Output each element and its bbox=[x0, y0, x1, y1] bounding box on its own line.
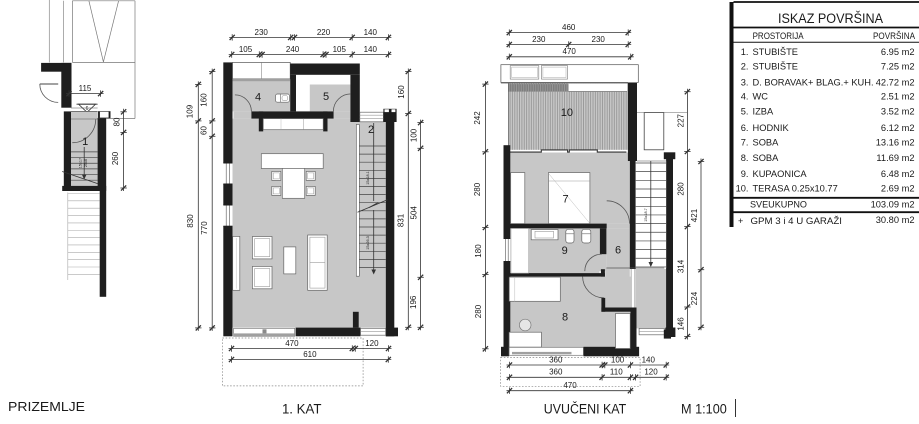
svg-text:SVEUKUPNO: SVEUKUPNO bbox=[750, 199, 807, 209]
svg-text:110: 110 bbox=[610, 368, 623, 377]
svg-text:7.25 m2: 7.25 m2 bbox=[881, 62, 915, 72]
svg-text:470: 470 bbox=[563, 381, 577, 390]
svg-text:7.: 7. bbox=[741, 138, 749, 148]
svg-text:100: 100 bbox=[409, 128, 418, 142]
svg-text:2.51 m2: 2.51 m2 bbox=[881, 92, 915, 102]
svg-text:230: 230 bbox=[532, 35, 546, 44]
svg-text:109: 109 bbox=[185, 104, 194, 118]
svg-text:224: 224 bbox=[690, 291, 699, 305]
svg-text:7: 7 bbox=[562, 194, 568, 206]
svg-text:STUBIŠTE: STUBIŠTE bbox=[753, 62, 798, 72]
svg-text:2.: 2. bbox=[741, 62, 749, 72]
svg-text:196: 196 bbox=[409, 295, 418, 309]
svg-text:830: 830 bbox=[186, 214, 195, 228]
svg-text:42.72 m2: 42.72 m2 bbox=[876, 78, 915, 88]
svg-text:105: 105 bbox=[239, 45, 253, 54]
svg-text:1: 1 bbox=[82, 136, 88, 148]
svg-text:PRIZEMLJE: PRIZEMLJE bbox=[8, 399, 85, 414]
svg-text:220: 220 bbox=[317, 28, 331, 37]
svg-text:15x17: 15x17 bbox=[79, 158, 83, 168]
svg-text:504: 504 bbox=[409, 206, 418, 220]
svg-text:280: 280 bbox=[474, 304, 483, 318]
svg-text:SOBA: SOBA bbox=[753, 153, 780, 163]
svg-text:ISKAZ POVRŠINA: ISKAZ POVRŠINA bbox=[778, 10, 883, 27]
svg-text:POVRŠINA: POVRŠINA bbox=[873, 31, 916, 41]
svg-text:2: 2 bbox=[368, 124, 374, 136]
svg-text:770: 770 bbox=[200, 221, 209, 235]
svg-text:140: 140 bbox=[642, 355, 656, 364]
svg-text:240: 240 bbox=[286, 45, 300, 54]
svg-text:8.: 8. bbox=[741, 153, 749, 163]
svg-text:30.80 m2: 30.80 m2 bbox=[876, 215, 915, 225]
svg-text:460: 460 bbox=[562, 23, 576, 32]
svg-text:SOBA: SOBA bbox=[753, 138, 780, 148]
svg-text:180: 180 bbox=[474, 244, 483, 258]
svg-text:M 1:100: M 1:100 bbox=[681, 402, 727, 417]
svg-text:227: 227 bbox=[676, 113, 685, 127]
svg-text:4.: 4. bbox=[741, 92, 749, 102]
svg-text:105: 105 bbox=[333, 45, 347, 54]
svg-text:160: 160 bbox=[199, 93, 208, 107]
svg-text:UVUČENI KAT: UVUČENI KAT bbox=[544, 402, 627, 417]
svg-text:831: 831 bbox=[397, 213, 406, 227]
svg-text:2.69 m2: 2.69 m2 bbox=[881, 184, 915, 194]
svg-text:260: 260 bbox=[111, 151, 120, 165]
svg-text:IZBA: IZBA bbox=[753, 107, 774, 117]
svg-text:280: 280 bbox=[473, 182, 482, 196]
svg-text:230: 230 bbox=[592, 35, 606, 44]
svg-text:10.: 10. bbox=[736, 184, 749, 194]
svg-text:115: 115 bbox=[79, 84, 92, 93]
svg-text:6: 6 bbox=[615, 245, 621, 257]
svg-text:80: 80 bbox=[113, 117, 122, 126]
svg-text:6.: 6. bbox=[741, 123, 749, 133]
svg-text:60: 60 bbox=[199, 126, 208, 135]
svg-text:5: 5 bbox=[323, 91, 329, 103]
svg-text:9.: 9. bbox=[741, 169, 749, 179]
svg-text:GPM 3 i 4 U GARAŽI: GPM 3 i 4 U GARAŽI bbox=[751, 216, 843, 226]
svg-text:8: 8 bbox=[562, 312, 568, 324]
svg-text:+: + bbox=[738, 216, 743, 226]
svg-text:1. KAT: 1. KAT bbox=[282, 402, 322, 417]
svg-text:120: 120 bbox=[644, 368, 658, 377]
svg-text:140: 140 bbox=[364, 45, 378, 54]
svg-text:15x18.1: 15x18.1 bbox=[366, 171, 370, 185]
svg-text:9: 9 bbox=[562, 245, 568, 257]
svg-text:1.: 1. bbox=[741, 47, 749, 57]
svg-text:140: 140 bbox=[364, 28, 378, 37]
svg-text:11.69 m2: 11.69 m2 bbox=[876, 153, 914, 163]
svg-text:4: 4 bbox=[255, 92, 261, 104]
svg-text:15x18.7: 15x18.7 bbox=[644, 208, 648, 222]
svg-text:10: 10 bbox=[561, 107, 573, 119]
svg-text:5.: 5. bbox=[741, 107, 749, 117]
svg-text:146: 146 bbox=[676, 317, 685, 331]
svg-text:KUPAONICA: KUPAONICA bbox=[753, 169, 808, 179]
svg-text:25x6: 25x6 bbox=[84, 159, 88, 167]
svg-text:280: 280 bbox=[676, 182, 685, 196]
svg-text:230: 230 bbox=[255, 28, 269, 37]
svg-text:421: 421 bbox=[690, 208, 699, 222]
svg-text:120: 120 bbox=[365, 339, 379, 348]
svg-text:WC: WC bbox=[753, 92, 769, 102]
svg-text:STUBIŠTE: STUBIŠTE bbox=[753, 47, 798, 57]
svg-text:470: 470 bbox=[563, 47, 577, 56]
svg-text:PROSTORIJA: PROSTORIJA bbox=[753, 31, 805, 41]
svg-text:610: 610 bbox=[303, 350, 317, 359]
svg-text:160: 160 bbox=[397, 85, 406, 99]
svg-text:D. BORAVAK+ BLAG.+ KUH.: D. BORAVAK+ BLAG.+ KUH. bbox=[753, 78, 874, 88]
svg-text:314: 314 bbox=[676, 259, 685, 273]
svg-text:100: 100 bbox=[611, 355, 625, 364]
svg-text:TERASA 0.25x10.77: TERASA 0.25x10.77 bbox=[753, 184, 838, 194]
svg-text:470: 470 bbox=[285, 339, 299, 348]
svg-text:13.16 m2: 13.16 m2 bbox=[876, 138, 915, 148]
svg-text:3.52 m2: 3.52 m2 bbox=[881, 107, 915, 117]
svg-text:15x26.3: 15x26.3 bbox=[366, 236, 370, 250]
svg-text:6.12 m2: 6.12 m2 bbox=[881, 123, 915, 133]
svg-text:HODNIK: HODNIK bbox=[753, 123, 790, 133]
svg-text:242: 242 bbox=[473, 111, 482, 125]
svg-text:103.09 m2: 103.09 m2 bbox=[871, 199, 915, 209]
svg-text:3.: 3. bbox=[741, 78, 749, 88]
svg-text:6.48 m2: 6.48 m2 bbox=[881, 169, 915, 179]
svg-text:360: 360 bbox=[549, 355, 563, 364]
svg-text:6.95 m2: 6.95 m2 bbox=[881, 47, 915, 57]
svg-text:360: 360 bbox=[549, 368, 563, 377]
